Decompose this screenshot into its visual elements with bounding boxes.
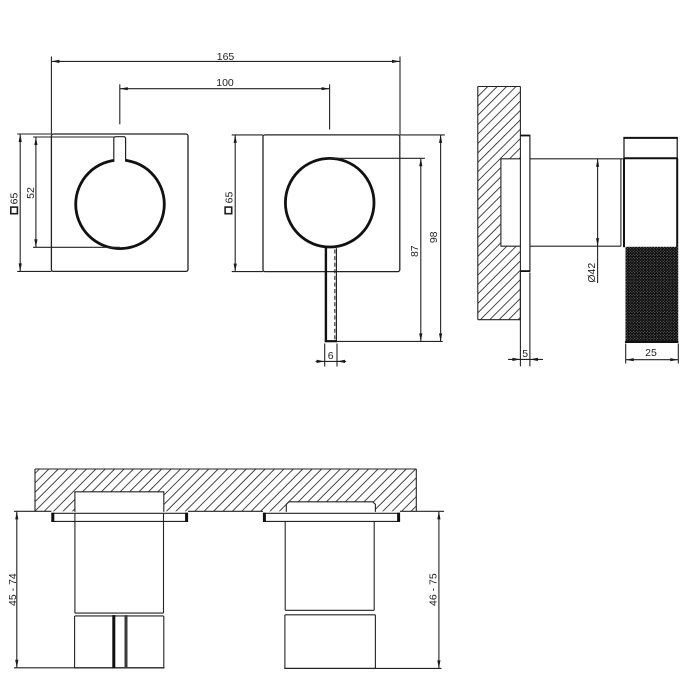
svg-text:6: 6 (328, 350, 334, 362)
svg-text:25: 25 (645, 347, 657, 359)
svg-text:87: 87 (409, 245, 421, 257)
svg-text:46 - 75: 46 - 75 (427, 573, 439, 606)
svg-text:165: 165 (217, 51, 235, 63)
svg-text:100: 100 (216, 77, 234, 89)
svg-text:Ø42: Ø42 (586, 263, 598, 283)
svg-text:65: 65 (9, 193, 21, 205)
svg-text:5: 5 (522, 348, 528, 360)
svg-text:52: 52 (25, 187, 37, 199)
svg-text:65: 65 (224, 192, 236, 204)
svg-text:98: 98 (428, 231, 440, 243)
svg-text:45 - 74: 45 - 74 (7, 573, 19, 606)
